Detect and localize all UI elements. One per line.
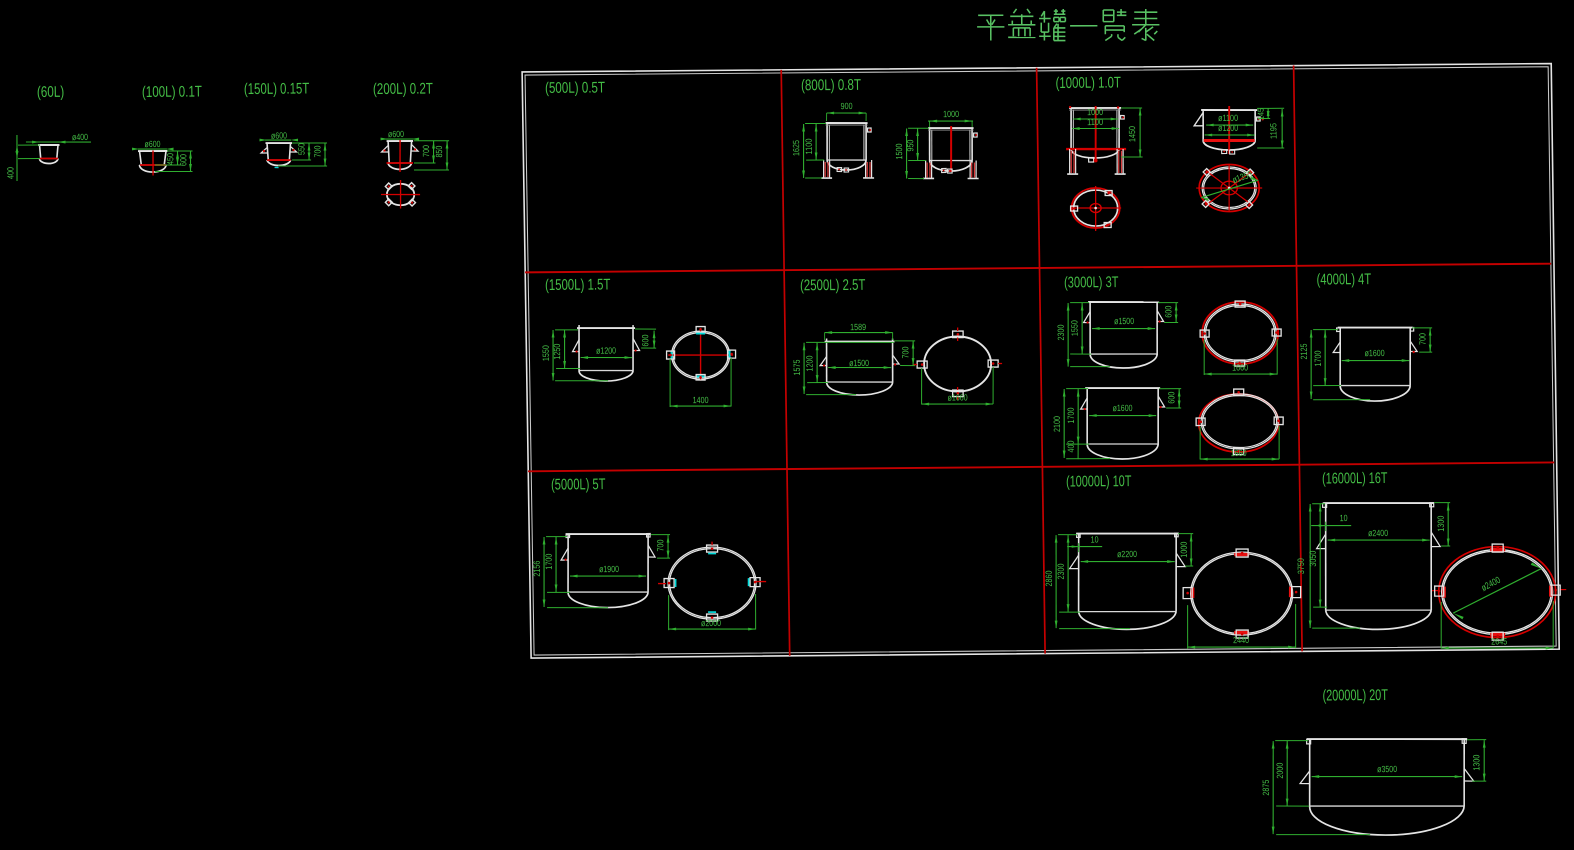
svg-text:1700: 1700 <box>544 554 554 570</box>
svg-text:ø1500: ø1500 <box>849 358 869 368</box>
svg-text:1660: 1660 <box>1232 362 1248 372</box>
svg-text:1700: 1700 <box>1066 408 1076 424</box>
svg-text:(1500L) 1.5T: (1500L) 1.5T <box>545 276 611 294</box>
svg-text:ø400: ø400 <box>72 132 88 142</box>
svg-text:1660: 1660 <box>1231 448 1247 458</box>
svg-text:ø1200: ø1200 <box>1218 123 1238 133</box>
svg-text:ø2200: ø2200 <box>1117 549 1137 559</box>
svg-text:ø2000: ø2000 <box>701 618 721 628</box>
svg-text:(100L) 0.1T: (100L) 0.1T <box>142 83 203 101</box>
svg-text:900: 900 <box>840 101 852 111</box>
svg-text:700: 700 <box>1417 333 1427 345</box>
svg-text:2300: 2300 <box>1056 324 1066 340</box>
svg-text:(20000L) 20T: (20000L) 20T <box>1322 687 1388 705</box>
svg-text:10: 10 <box>1090 535 1098 545</box>
svg-text:ø1660: ø1660 <box>948 392 968 402</box>
svg-text:(60L): (60L) <box>37 84 64 101</box>
svg-text:ø1200: ø1200 <box>596 346 616 356</box>
svg-text:(2500L) 2.5T: (2500L) 2.5T <box>800 277 866 295</box>
svg-text:950: 950 <box>905 140 915 152</box>
svg-text:3050: 3050 <box>1308 551 1318 567</box>
svg-text:1450: 1450 <box>1127 126 1137 142</box>
svg-text:(5000L) 5T: (5000L) 5T <box>551 476 606 493</box>
svg-text:2156: 2156 <box>532 561 542 577</box>
svg-text:2875: 2875 <box>1261 780 1271 796</box>
svg-text:ø1600: ø1600 <box>1365 348 1385 358</box>
svg-text:2440: 2440 <box>1233 635 1249 645</box>
svg-text:600: 600 <box>1166 392 1176 404</box>
svg-text:600: 600 <box>1163 306 1173 318</box>
svg-text:1200: 1200 <box>804 356 814 372</box>
svg-text:(500L) 0.5T: (500L) 0.5T <box>545 79 606 97</box>
svg-text:1100: 1100 <box>804 139 814 155</box>
svg-text:1300: 1300 <box>1436 516 1446 532</box>
svg-text:600: 600 <box>178 154 188 166</box>
svg-text:1000: 1000 <box>1087 107 1103 117</box>
svg-text:1000: 1000 <box>943 109 959 119</box>
svg-text:2125: 2125 <box>1299 344 1309 360</box>
svg-text:1589: 1589 <box>850 322 866 332</box>
svg-text:1100: 1100 <box>1087 117 1103 127</box>
svg-text:10: 10 <box>1340 513 1348 523</box>
svg-text:1500: 1500 <box>894 144 904 160</box>
svg-text:(3000L) 3T: (3000L) 3T <box>1064 274 1119 291</box>
svg-text:400: 400 <box>5 167 15 179</box>
svg-text:1000: 1000 <box>1179 542 1189 558</box>
svg-text:ø1100: ø1100 <box>1218 113 1238 123</box>
svg-text:850: 850 <box>434 146 444 158</box>
svg-text:ø1500: ø1500 <box>1114 316 1134 326</box>
svg-text:ø1900: ø1900 <box>599 564 619 574</box>
svg-text:(10000L) 10T: (10000L) 10T <box>1066 473 1132 491</box>
svg-text:ø2400: ø2400 <box>1368 528 1388 538</box>
svg-text:(150L) 0.15T: (150L) 0.15T <box>244 80 310 98</box>
svg-text:(800L) 0.8T: (800L) 0.8T <box>801 77 862 95</box>
svg-text:1550: 1550 <box>541 345 551 361</box>
svg-text:2300: 2300 <box>1056 564 1066 580</box>
svg-text:700: 700 <box>312 145 322 157</box>
svg-text:600: 600 <box>640 335 650 347</box>
svg-text:2000: 2000 <box>1275 763 1285 779</box>
svg-text:(16000L) 16T: (16000L) 16T <box>1322 470 1388 488</box>
svg-text:(200L) 0.2T: (200L) 0.2T <box>373 81 434 99</box>
svg-text:2860: 2860 <box>1044 571 1054 587</box>
svg-text:700: 700 <box>421 145 431 157</box>
svg-text:3750: 3750 <box>1296 558 1306 574</box>
svg-text:ø600: ø600 <box>144 139 160 149</box>
svg-text:1575: 1575 <box>792 360 802 376</box>
svg-text:700: 700 <box>900 347 910 359</box>
svg-text:1625: 1625 <box>791 140 801 156</box>
svg-text:400: 400 <box>1066 441 1076 453</box>
svg-text:1700: 1700 <box>1313 351 1323 367</box>
svg-text:2645: 2645 <box>1491 636 1507 646</box>
svg-text:1400: 1400 <box>693 395 709 405</box>
svg-text:1195: 1195 <box>1268 123 1278 139</box>
svg-text:2100: 2100 <box>1052 416 1062 432</box>
svg-text:ø600: ø600 <box>388 129 404 139</box>
svg-text:(4000L) 4T: (4000L) 4T <box>1316 271 1371 288</box>
svg-text:ø3500: ø3500 <box>1377 764 1397 774</box>
svg-text:1250: 1250 <box>552 344 562 360</box>
svg-text:ø1600: ø1600 <box>1112 403 1132 413</box>
svg-text:550: 550 <box>296 143 306 155</box>
svg-text:1550: 1550 <box>1069 320 1079 336</box>
svg-text:700: 700 <box>655 540 665 552</box>
svg-text:450: 450 <box>165 153 175 165</box>
svg-text:ø600: ø600 <box>271 130 287 140</box>
svg-text:1300: 1300 <box>1471 755 1481 771</box>
svg-text:(1000L) 1.0T: (1000L) 1.0T <box>1055 74 1121 92</box>
